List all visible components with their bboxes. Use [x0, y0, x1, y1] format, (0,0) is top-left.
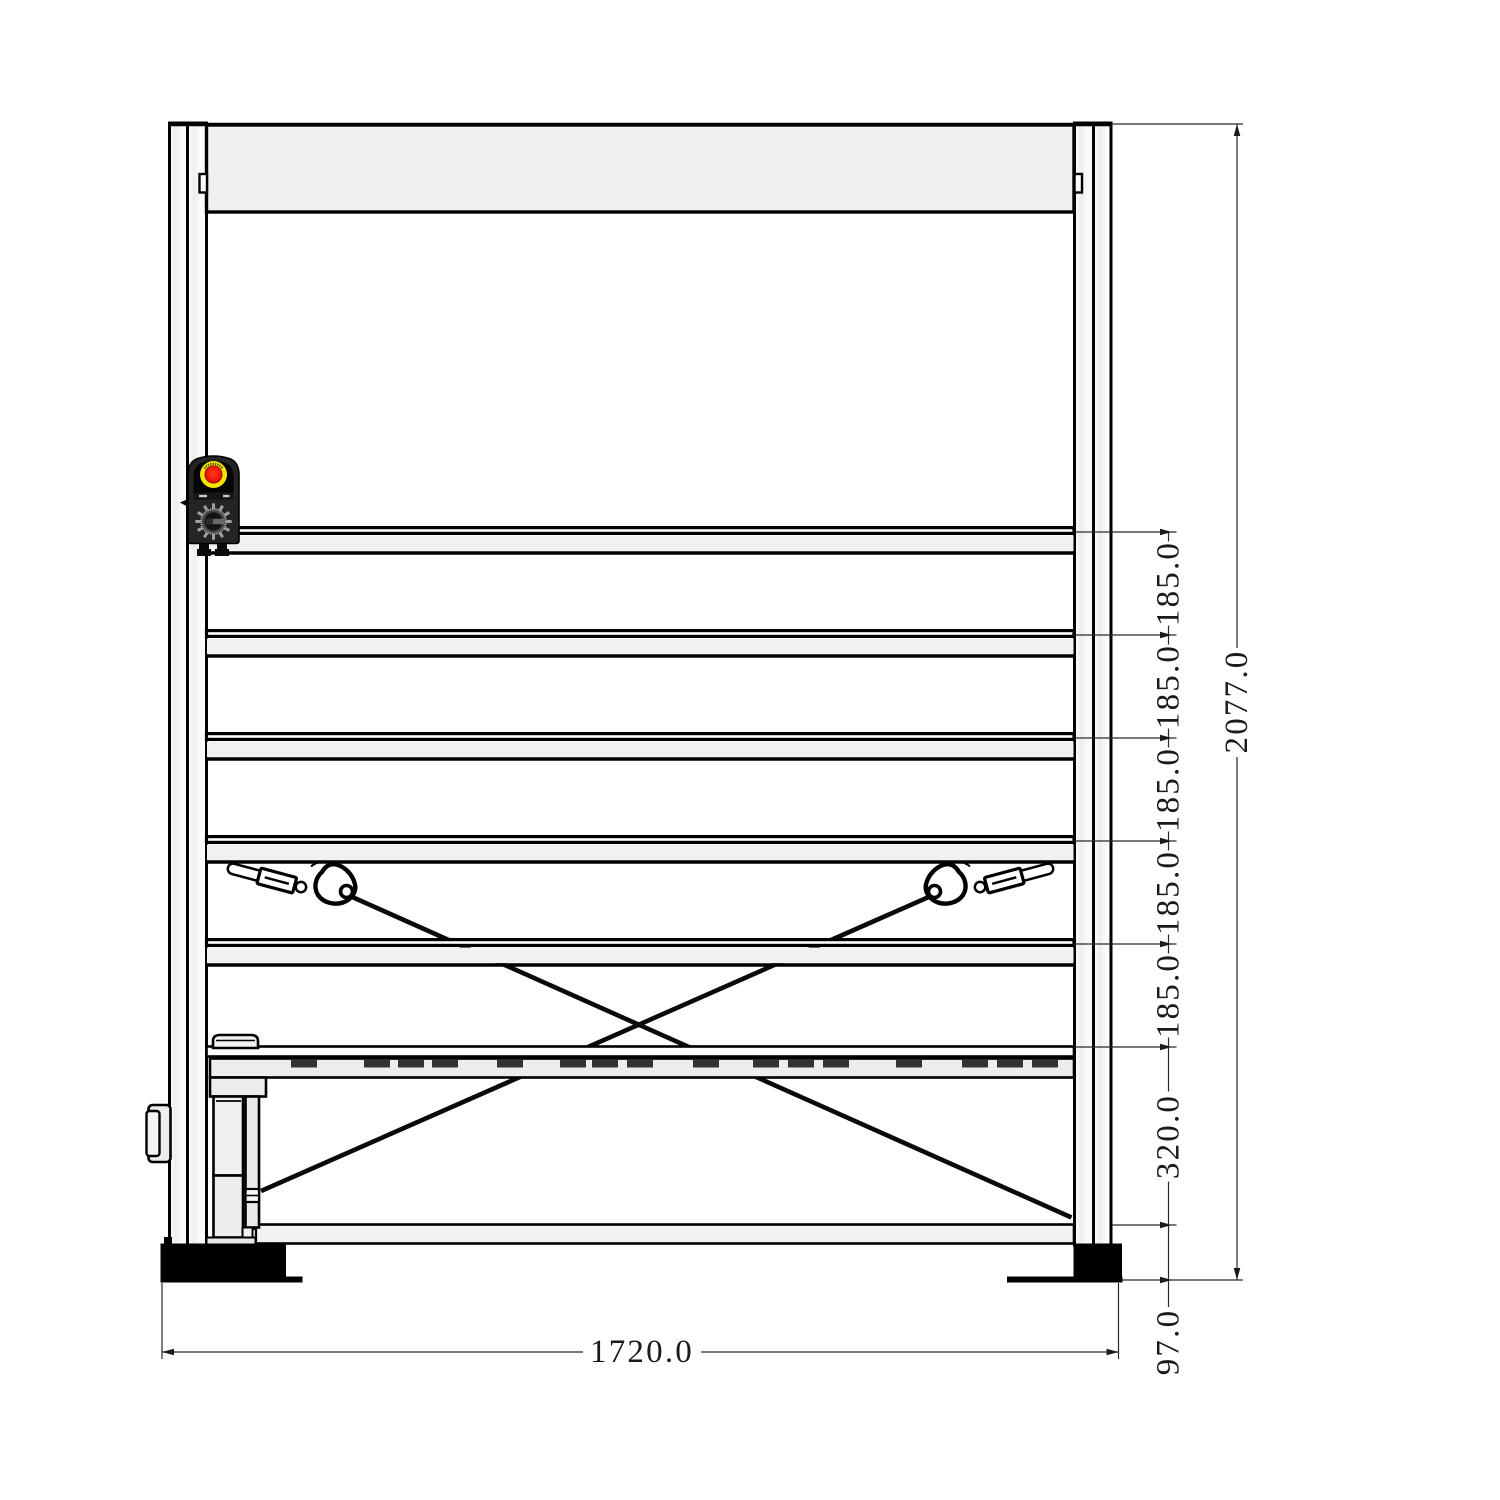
svg-text:320.0: 320.0 — [1151, 1094, 1187, 1179]
svg-text:185.0: 185.0 — [1151, 850, 1187, 935]
svg-text:97.0: 97.0 — [1151, 1309, 1187, 1376]
svg-text:185.0: 185.0 — [1151, 747, 1187, 832]
svg-text:185.0: 185.0 — [1151, 541, 1187, 626]
svg-text:185.0: 185.0 — [1151, 644, 1187, 729]
svg-text:2077.0: 2077.0 — [1219, 650, 1255, 754]
svg-text:185.0: 185.0 — [1151, 953, 1187, 1038]
svg-text:1720.0: 1720.0 — [590, 1334, 694, 1370]
